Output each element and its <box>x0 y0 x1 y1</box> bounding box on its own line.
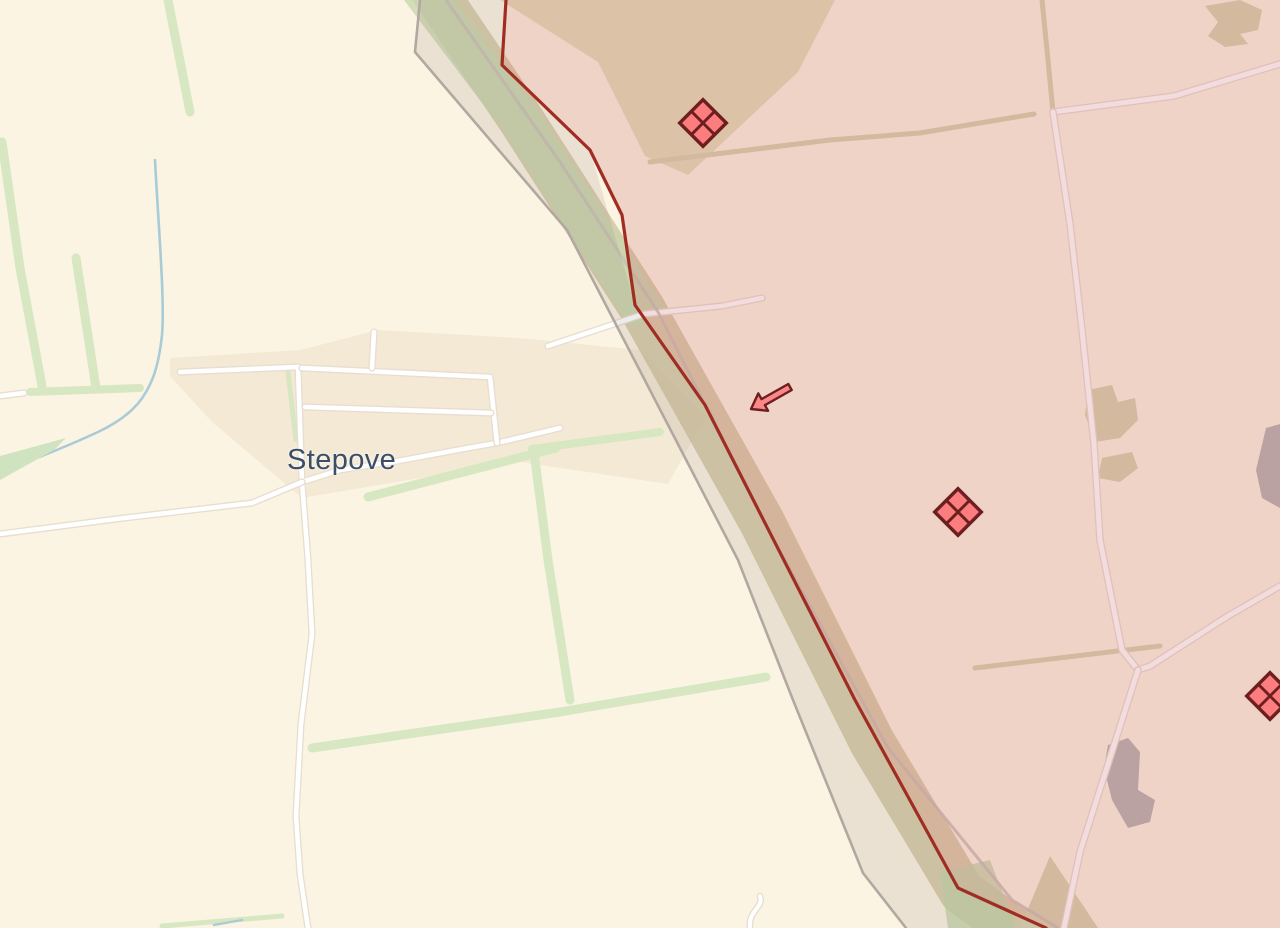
treeline-2 <box>2 142 42 386</box>
map-canvas[interactable]: Stepove <box>0 0 1280 928</box>
map-svg <box>0 0 1280 928</box>
treeline-4 <box>30 388 140 392</box>
treeline-3 <box>76 258 96 388</box>
treeline-8 <box>312 677 766 748</box>
road-stub-left <box>0 393 24 396</box>
treeline-7 <box>534 452 570 700</box>
pond-wedge <box>0 438 66 480</box>
road-ladder-stub <box>372 332 374 368</box>
road-southwest-diagonal <box>0 482 302 534</box>
place-label: Stepove <box>287 444 396 477</box>
treeline-1 <box>168 0 190 112</box>
